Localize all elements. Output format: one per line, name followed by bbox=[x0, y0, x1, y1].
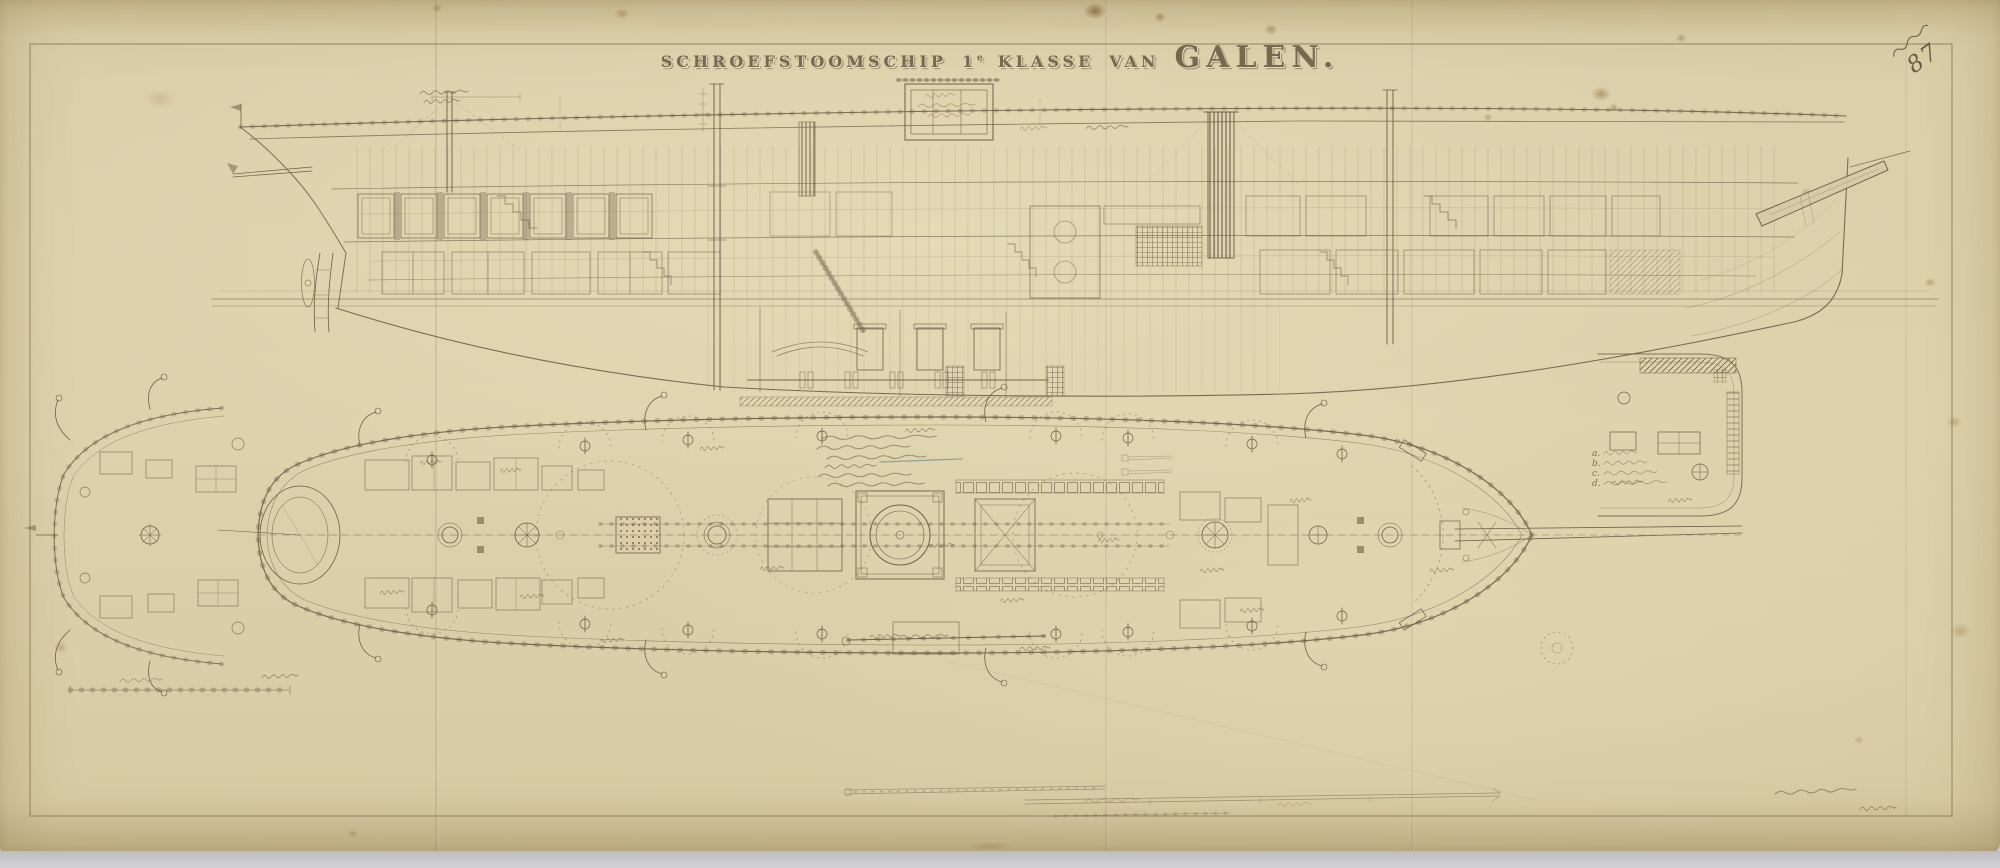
deck-plan bbox=[218, 384, 1745, 686]
windlass bbox=[1309, 526, 1327, 544]
scan-background bbox=[0, 851, 2000, 868]
title-ship-name: GALEN. bbox=[1174, 40, 1339, 75]
spanker-boom bbox=[227, 163, 312, 177]
platform-skylights bbox=[80, 438, 244, 634]
signature bbox=[1775, 788, 1896, 810]
spar-drawings bbox=[844, 662, 1536, 816]
capstan bbox=[515, 523, 539, 547]
stern-flagpole bbox=[230, 104, 241, 126]
title-class: 1e bbox=[962, 52, 983, 71]
sheet-title: SCHROEFSTOOMSCHIP 1e KLASSE VAN GALEN. bbox=[661, 40, 1340, 75]
platform-capstan bbox=[1692, 464, 1708, 480]
grating-walkway bbox=[956, 578, 1164, 591]
vent-pipe bbox=[799, 122, 815, 196]
propeller bbox=[302, 259, 315, 307]
stern-platform-plan bbox=[24, 374, 244, 696]
deck-boom bbox=[842, 636, 1045, 645]
title-class-word: KLASSE bbox=[998, 52, 1095, 71]
central-note-block bbox=[817, 435, 962, 486]
paper-sheet: a. b. c. d. bbox=[0, 0, 2000, 853]
scale-bar bbox=[70, 678, 290, 694]
capstan bbox=[1198, 518, 1232, 552]
side-elevation bbox=[212, 80, 1938, 406]
forecastle-platform-plan bbox=[1598, 354, 1742, 516]
stern-flagstaff-plan bbox=[24, 525, 58, 535]
legend-item-b: b. bbox=[1592, 459, 1601, 469]
title-connector: VAN bbox=[1109, 52, 1159, 71]
legend-item-a: a. bbox=[1592, 449, 1600, 459]
grated-hatch bbox=[616, 517, 660, 553]
steering-wheel bbox=[139, 524, 161, 546]
legend-item-d: d. bbox=[1592, 479, 1601, 489]
forward-cabins-plan bbox=[1180, 492, 1298, 628]
aft-cabins-plan bbox=[365, 456, 604, 612]
ship-drawing-svg: a. b. c. d. bbox=[0, 0, 2000, 868]
davits bbox=[359, 384, 1327, 446]
title-ship-type: SCHROEFSTOOMSCHIP bbox=[661, 52, 947, 71]
grating-walkway bbox=[956, 480, 1164, 493]
detail-circle bbox=[1541, 632, 1573, 664]
rudder bbox=[314, 253, 333, 332]
legend-item-c: c. bbox=[1592, 469, 1600, 479]
legend: a. b. c. d. bbox=[1592, 449, 1667, 489]
